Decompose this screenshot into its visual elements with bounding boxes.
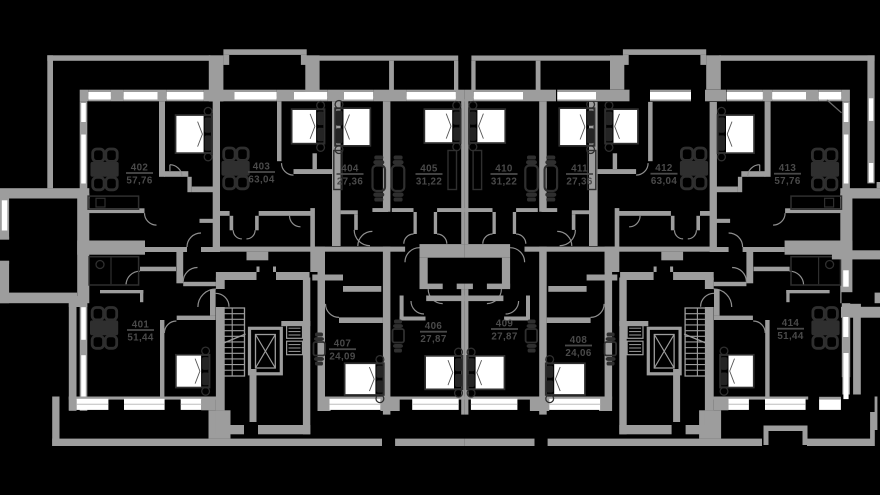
svg-text:27,87: 27,87 [491,332,517,343]
svg-text:31,22: 31,22 [491,177,517,188]
svg-text:24,06: 24,06 [565,348,591,359]
svg-text:413: 413 [779,163,797,174]
svg-text:411: 411 [571,163,588,174]
svg-text:27,36: 27,36 [566,177,592,188]
svg-text:414: 414 [782,318,800,329]
svg-text:408: 408 [570,335,588,346]
svg-text:402: 402 [131,162,149,173]
svg-text:57,76: 57,76 [126,176,152,187]
svg-text:27,87: 27,87 [420,334,446,345]
svg-text:405: 405 [420,163,438,174]
svg-text:404: 404 [341,163,359,174]
svg-text:51,44: 51,44 [777,331,803,342]
svg-text:403: 403 [253,161,271,172]
svg-text:63,04: 63,04 [651,176,677,187]
svg-text:27,36: 27,36 [337,177,363,188]
svg-text:409: 409 [496,318,514,329]
svg-text:407: 407 [334,339,352,350]
svg-text:412: 412 [655,163,673,174]
svg-text:51,44: 51,44 [127,333,153,344]
svg-text:63,04: 63,04 [248,175,274,186]
svg-text:57,76: 57,76 [774,176,800,187]
svg-text:24,09: 24,09 [329,352,355,363]
svg-text:31,22: 31,22 [416,177,442,188]
svg-text:410: 410 [495,163,513,174]
svg-text:406: 406 [425,321,443,332]
svg-text:401: 401 [132,319,150,330]
